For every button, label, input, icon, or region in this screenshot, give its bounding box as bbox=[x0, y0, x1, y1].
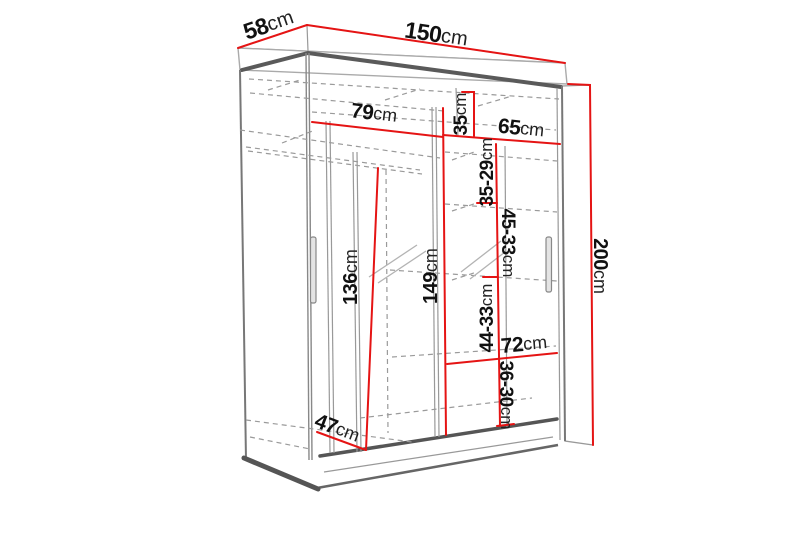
dim-line-79 bbox=[312, 122, 443, 137]
dim-label-45-33: 45-33cm bbox=[497, 209, 518, 278]
ceiling-mid-dashed bbox=[250, 93, 444, 111]
ceiling-depth-dashed-1 bbox=[268, 80, 300, 90]
ceiling-depth-dashed-2 bbox=[385, 89, 420, 100]
wardrobe-body bbox=[240, 53, 593, 489]
hanging-rail-dashed-a bbox=[246, 147, 420, 170]
dim-label-149: 149cm bbox=[420, 248, 442, 304]
left-section-line-a bbox=[326, 121, 330, 453]
dim-label-35: 35cm bbox=[451, 93, 472, 136]
wardrobe-diagram-canvas: 58cm 150cm 200cm 79cm 35cm 65cm 35-29cm … bbox=[0, 0, 800, 533]
left-front-edge bbox=[240, 70, 246, 460]
mirror-hatch-icon bbox=[461, 241, 501, 272]
mirror-hatch-icon bbox=[369, 245, 417, 277]
interior-vertical-dashed bbox=[386, 170, 388, 433]
dim-line-136 bbox=[366, 168, 378, 450]
dim-line-149 bbox=[443, 108, 446, 435]
left-door-edge-a bbox=[306, 53, 309, 460]
mirror-hatch-icon bbox=[378, 251, 426, 283]
dim-label-200: 200cm bbox=[589, 238, 611, 294]
dim-label-72: 72cm bbox=[500, 331, 548, 358]
dim-label-65: 65cm bbox=[497, 114, 546, 142]
dimension-lines bbox=[238, 25, 593, 450]
right-front-inner-edge bbox=[557, 88, 560, 440]
dim-label-35-29: 35-29cm bbox=[477, 138, 498, 207]
left-section-line-b bbox=[330, 121, 334, 453]
interior-partitions bbox=[306, 53, 507, 460]
wardrobe-top-panel bbox=[238, 25, 567, 84]
dim-label-47: 47cm bbox=[312, 409, 364, 447]
dim-label-136: 136cm bbox=[340, 249, 362, 305]
ceiling-depth-dashed-3 bbox=[478, 96, 512, 106]
left-bottom-corner-edge bbox=[244, 458, 318, 489]
right-side-panel bbox=[562, 85, 593, 445]
dim-label-79: 79cm bbox=[350, 99, 399, 127]
wardrobe-diagram: 58cm 150cm 200cm 79cm 35cm 65cm 35-29cm … bbox=[0, 0, 800, 533]
dim-label-36-30: 36-30cm bbox=[495, 361, 516, 430]
hanging-rail-dashed-b bbox=[248, 151, 422, 174]
dim-label-44-33: 44-33cm bbox=[477, 284, 498, 353]
floor-left-dashed-2 bbox=[250, 437, 310, 449]
left-door-handle bbox=[311, 237, 317, 303]
right-door-handle bbox=[546, 237, 552, 292]
